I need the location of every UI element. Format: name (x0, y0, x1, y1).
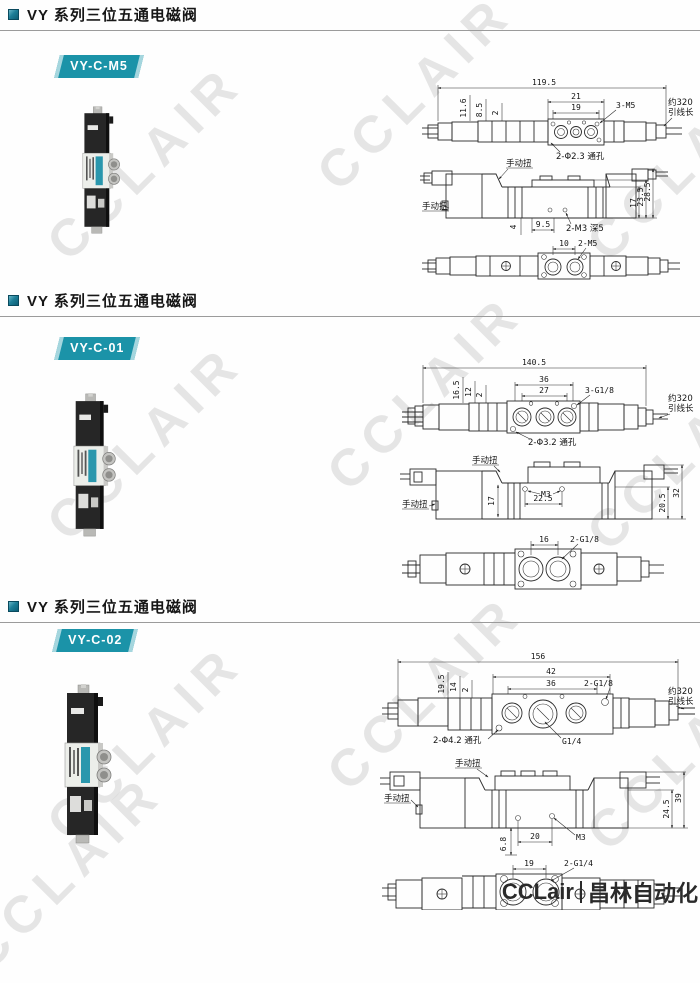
bottom-view: 10 2-M5 (422, 239, 680, 279)
dim-side1: 17 (487, 496, 496, 506)
dimension-drawing-vy-c-01: 140.5 36 27 16.5 12 2 3-G1/8 2-Φ3.2 通孔 约… (400, 355, 700, 590)
section-bullet-icon (8, 9, 19, 20)
port-label: 3-M5 (616, 101, 635, 110)
dim-height2: 32 (672, 488, 681, 498)
dim-width-inner: 36 (546, 679, 556, 688)
dim-height2: 39 (674, 793, 683, 803)
watermark-text: CCLAIR (35, 53, 255, 273)
dim-side2: 22.5 (533, 494, 552, 503)
model-badge-vy-c-02: VY-C-02 (52, 629, 138, 652)
dim-offset1: 11.6 (459, 98, 468, 117)
footer-logo: CCLair 昌林自动化 (502, 876, 698, 908)
manual-override-label: 手动扭 (422, 201, 448, 212)
section-divider (0, 30, 700, 31)
port-label: 2-G1/8 (584, 679, 613, 688)
manual-override-label: 手动扭 (472, 455, 498, 466)
dim-offset1: 16.5 (452, 380, 461, 399)
thread-label: 2-M3 深5 (566, 224, 604, 234)
bottom-port-label: 2-M5 (578, 239, 597, 248)
dim-width-outer: 21 (571, 92, 581, 101)
section-bullet-icon (8, 295, 19, 306)
side-view: 手动扭 手动扭 4 9.5 2-M3 深5 (420, 158, 668, 235)
dim-offset2: 12 (464, 387, 473, 397)
top-view: 140.5 36 27 16.5 12 2 3-G1/8 2-Φ3.2 通孔 约… (402, 358, 694, 448)
dim-bottom-pitch: 10 (559, 239, 569, 248)
footer-brand: CCLair (502, 879, 574, 905)
dim-offset2: 14 (449, 682, 458, 692)
section-header-2: VY 系列三位五通电磁阀 (0, 290, 700, 317)
bottom-port-label: 2-G1/8 (570, 535, 599, 544)
dim-overall: 119.5 (532, 78, 556, 87)
section-header-3: VY 系列三位五通电磁阀 (0, 596, 700, 623)
model-badge-vy-c-m5: VY-C-M5 (54, 55, 143, 78)
dim-width-outer: 36 (539, 375, 549, 384)
model-badge-label: VY-C-01 (70, 341, 124, 355)
top-view: 156 42 36 19.5 14 2 2-G1/8 2-Φ4.2 通孔 G1/… (382, 652, 695, 746)
dim-side1: 4 (509, 224, 518, 229)
product-photo-vy-c-m5 (74, 97, 122, 243)
lead-note: 引线长 (668, 696, 694, 707)
manual-override-label: 手动扭 (384, 793, 410, 804)
manual-override-label: 手动扭 (402, 499, 428, 510)
lead-note: 约320 (668, 393, 693, 404)
thread-label: M3 (576, 833, 586, 842)
dim-bottom-pitch: 19 (524, 859, 534, 868)
model-badge-vy-c-01: VY-C-01 (54, 337, 140, 360)
section-bullet-icon (8, 601, 19, 612)
dim-offset3: 2 (491, 110, 500, 115)
dim-height1: 24.5 (662, 799, 671, 818)
dim-overall: 140.5 (522, 358, 546, 367)
bottom-view: 16 2-G1/8 (402, 535, 664, 589)
dim-width-inner: 19 (571, 103, 581, 112)
lead-note: 约320 (668, 97, 693, 108)
dim-offset1: 19.5 (437, 674, 446, 693)
dimension-drawing-vy-c-02: 156 42 36 19.5 14 2 2-G1/8 2-Φ4.2 通孔 G1/… (380, 650, 700, 910)
lead-note: 约320 (668, 686, 693, 697)
section-title: VY 系列三位五通电磁阀 (27, 4, 198, 25)
footer-divider (580, 881, 582, 903)
side-view: 手动扭 手动扭 M3 22.5 17 20.5 32 (400, 455, 686, 519)
dim-side2: 9.5 (536, 220, 551, 229)
dim-offset2: 8.5 (475, 103, 484, 118)
hole-label: 2-Φ2.3 通孔 (556, 151, 605, 162)
section-divider (0, 622, 700, 623)
hole-label: 2-Φ4.2 通孔 (433, 735, 482, 746)
dim-side1: 6.8 (499, 837, 508, 852)
center-port-label: G1/4 (562, 737, 581, 746)
section-divider (0, 316, 700, 317)
lead-note: 引线长 (668, 403, 694, 414)
lead-note: 引线长 (668, 107, 694, 118)
footer-company: 昌林自动化 (588, 876, 698, 908)
dim-width-outer: 42 (546, 667, 556, 676)
dim-width-inner: 27 (539, 386, 549, 395)
dim-offset3: 2 (461, 687, 470, 692)
side-view: 手动扭 手动扭 M3 20 6.8 24.5 (380, 758, 688, 855)
dim-height1: 20.5 (658, 493, 667, 512)
model-badge-label: VY-C-02 (68, 633, 122, 647)
dim-side2: 20 (530, 832, 540, 841)
dimension-drawing-vy-c-m5: 119.5 21 19 11.6 8.5 2 3-M5 2-Φ2.3 通孔 约3… (420, 75, 700, 290)
bottom-port-label: 2-G1/4 (564, 859, 593, 868)
dim-bottom-pitch: 16 (539, 535, 549, 544)
product-photo-vy-c-01 (64, 386, 118, 544)
dim-offset3: 2 (475, 392, 484, 397)
section-title: VY 系列三位五通电磁阀 (27, 290, 198, 311)
dim-overall: 156 (531, 652, 546, 661)
manual-override-label: 手动扭 (506, 158, 532, 169)
model-badge-label: VY-C-M5 (70, 59, 128, 73)
manual-override-label: 手动扭 (455, 758, 481, 769)
port-label: 3-G1/8 (585, 386, 614, 395)
section-title: VY 系列三位五通电磁阀 (27, 596, 198, 617)
product-photo-vy-c-02 (54, 680, 114, 848)
top-view: 119.5 21 19 11.6 8.5 2 3-M5 2-Φ2.3 通孔 约3… (422, 78, 694, 162)
hole-label: 2-Φ3.2 通孔 (528, 437, 577, 448)
dim-height3: 28.5 (643, 182, 652, 201)
section-header-1: VY 系列三位五通电磁阀 (0, 4, 700, 31)
